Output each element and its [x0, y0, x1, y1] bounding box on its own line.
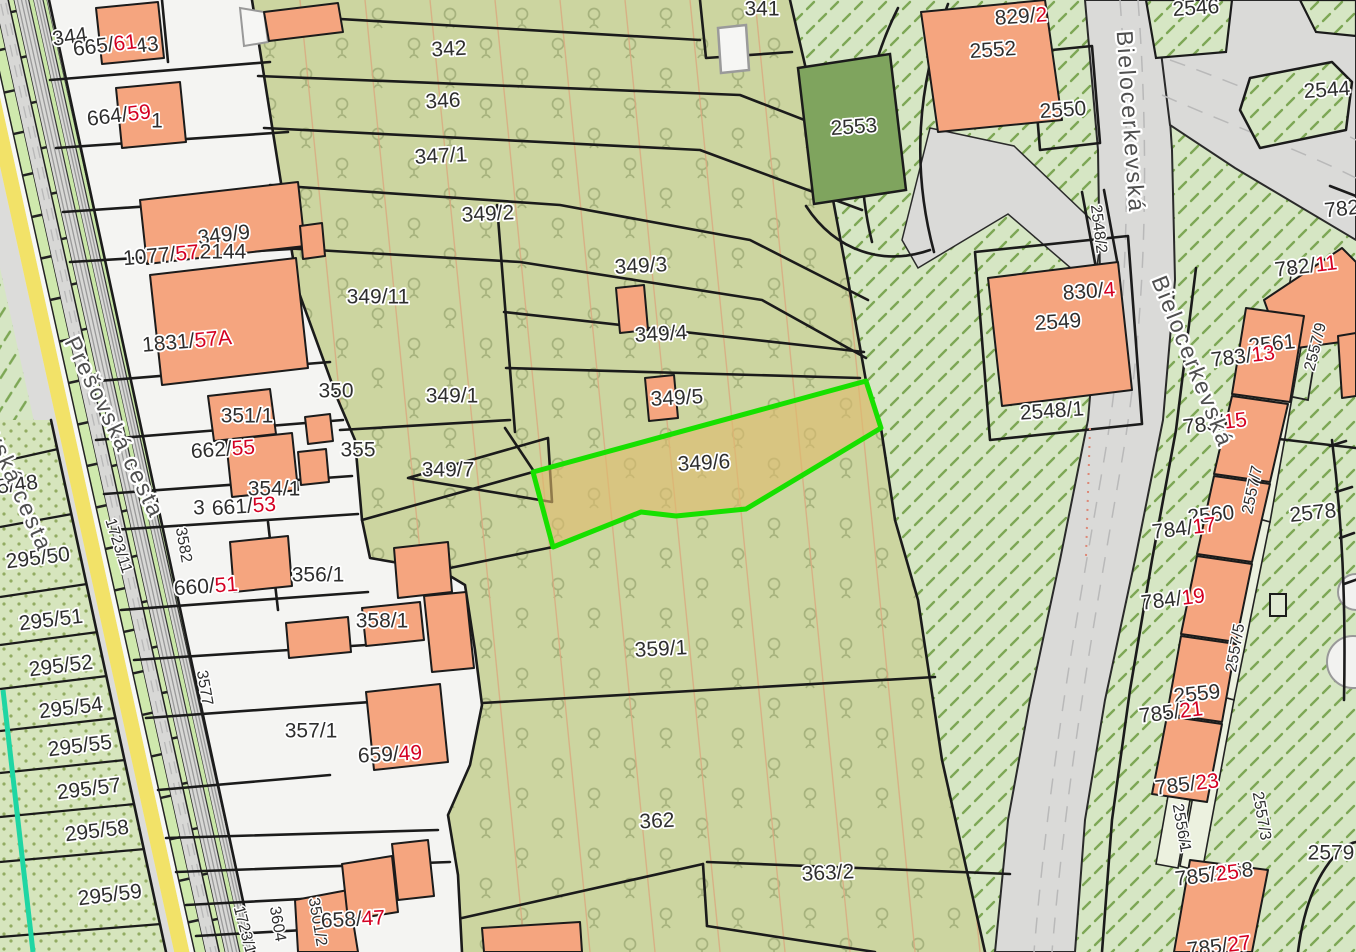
- cadastral-map-viewport[interactable]: 344431349/92144349/11350351/1355354/1334…: [0, 0, 1356, 952]
- parcel-number-label: 341: [744, 0, 779, 21]
- parcel-number-label: 2544: [1303, 77, 1352, 103]
- parcel-number-label: 2144: [200, 241, 247, 264]
- house-number: 47: [361, 906, 386, 930]
- address-label: 659/49: [357, 741, 422, 767]
- address-label: 830/4: [1062, 278, 1116, 305]
- house-number: 21: [1178, 697, 1204, 723]
- parcel-number-label: 351/1: [221, 405, 274, 428]
- parcel-prefix: 829/: [994, 4, 1037, 30]
- house-number: 11: [1314, 251, 1338, 276]
- parcel-number-label: 363/2: [801, 860, 855, 886]
- house-number: 19: [1180, 584, 1206, 610]
- parcel-prefix: 660/: [173, 574, 216, 600]
- parcel-number-label: 359/1: [634, 636, 688, 662]
- parcel-prefix: 658/: [320, 907, 362, 932]
- parcel-number-label: 2550: [1039, 97, 1087, 123]
- parcel-number-label: 349/7: [422, 459, 475, 482]
- house-number: 17: [1191, 513, 1217, 539]
- parcel-number-label: 349/11: [347, 286, 410, 309]
- address-label: 660/51: [173, 572, 239, 599]
- parcel-prefix: 662/: [190, 437, 233, 463]
- parcel-number-label: 342: [431, 37, 467, 62]
- parcel-number-label: 349/4: [634, 321, 688, 347]
- parcel-number-label: 355: [340, 439, 375, 462]
- parcel-prefix: 1831/: [141, 329, 196, 357]
- small-structure: [1270, 594, 1286, 616]
- parcel-number-label: 2578: [1288, 499, 1337, 527]
- parcel-number-label: 358/1: [356, 610, 409, 633]
- address-label: 658/47: [320, 906, 385, 932]
- parcel-number-label: 2549: [1034, 309, 1082, 335]
- house-number: 57A: [193, 326, 232, 352]
- parcel-number-label: 346: [425, 89, 461, 114]
- parcel-number-label: 349/5: [650, 385, 704, 411]
- house-number: 2: [1035, 3, 1048, 27]
- parcel-number-label: 2552: [969, 37, 1017, 63]
- house-number: 27: [1226, 931, 1252, 952]
- parcel-number-label: 2579: [1308, 842, 1355, 865]
- parcel-number-label: 782: [1323, 196, 1356, 223]
- parcel-number-label: 43: [134, 32, 160, 57]
- parcel-number-label: 349/6: [677, 450, 731, 476]
- house-number: 4: [1103, 278, 1117, 302]
- house-number: 51: [214, 572, 239, 597]
- house-number: 49: [398, 741, 423, 765]
- house-number: 57: [174, 240, 199, 265]
- parcel-number-label: 349/1: [426, 385, 479, 408]
- building-341-white: [718, 25, 749, 73]
- parcel-number-label: 3: [193, 497, 205, 520]
- parcel-number-label: 350: [318, 380, 353, 403]
- parcel-number-label: 349/3: [614, 253, 668, 279]
- parcel-number-label: 357/1: [285, 720, 338, 743]
- parcel-prefix: 1077/: [122, 242, 177, 270]
- parcel-number-label: 362: [639, 809, 675, 834]
- parcel-number-label: 356/1: [292, 564, 345, 587]
- address-label: 662/55: [190, 435, 256, 462]
- house-number: 53: [252, 492, 277, 517]
- house-number: 13: [1250, 341, 1276, 367]
- parcel-prefix: 661/: [211, 494, 254, 520]
- house-number: 59: [126, 100, 152, 126]
- house-number: 55: [231, 435, 256, 460]
- parcel-number-label: 349/2: [461, 201, 515, 227]
- parcel-prefix: 659/: [357, 742, 399, 767]
- parcel-prefix: 830/: [1062, 279, 1105, 305]
- house-number: 25: [1214, 860, 1240, 886]
- parcel-number-label: 2553: [830, 114, 878, 140]
- parcel-number-label: 2546: [1172, 0, 1220, 21]
- address-label: 829/2: [994, 3, 1048, 30]
- parcel-number-label: 2548/1: [1019, 397, 1085, 424]
- house-number: 61: [112, 30, 138, 56]
- house-number: 23: [1194, 769, 1220, 795]
- address-label: 661/53: [211, 492, 277, 519]
- parcel-number-label: 1: [151, 110, 163, 133]
- map-canvas[interactable]: 344431349/92144349/11350351/1355354/1334…: [0, 0, 1356, 952]
- parcel-number-label: 347/1: [414, 143, 468, 169]
